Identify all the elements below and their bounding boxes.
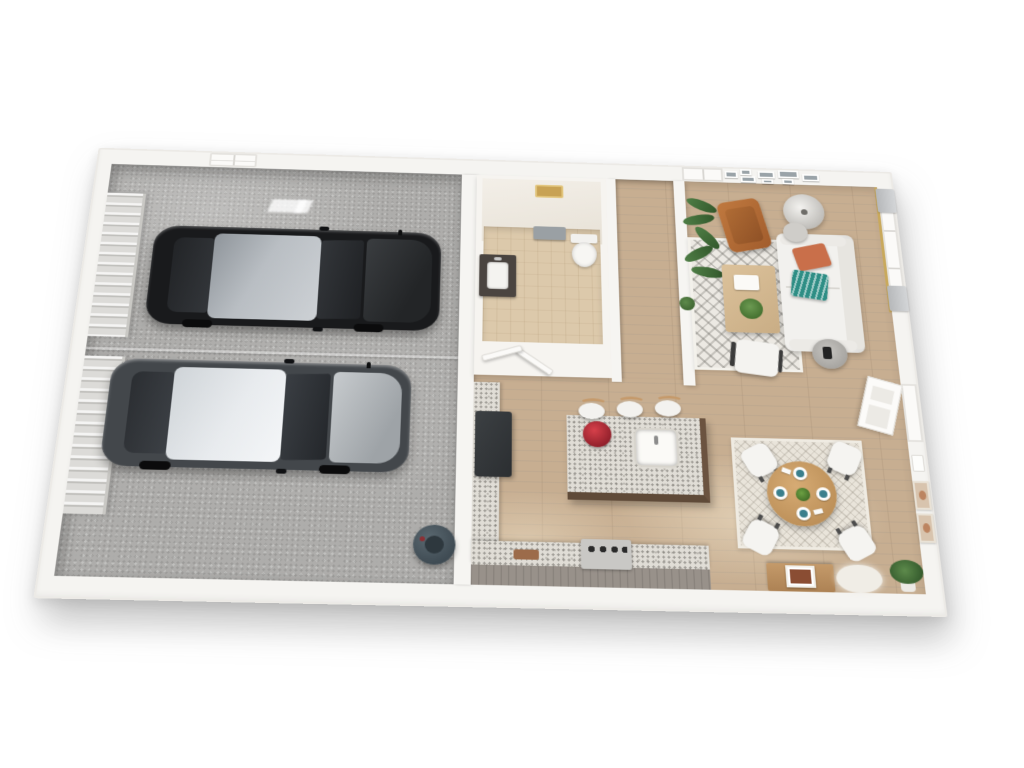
curtain-panel bbox=[875, 189, 896, 213]
refrigerator bbox=[474, 411, 511, 477]
black-sedan bbox=[144, 225, 442, 331]
bar-stool-1 bbox=[578, 402, 605, 419]
gallery-frame bbox=[740, 169, 752, 176]
thermostat-panel bbox=[911, 455, 925, 472]
toilet bbox=[568, 234, 601, 270]
page-background bbox=[0, 0, 1024, 768]
place-setting bbox=[773, 486, 788, 500]
bathroom-block bbox=[474, 175, 612, 378]
gray-sedan bbox=[99, 358, 412, 473]
exterior-walls bbox=[33, 148, 947, 617]
small-potted-plant bbox=[679, 297, 695, 311]
wall-art-2 bbox=[916, 513, 936, 543]
plant-leaves bbox=[889, 560, 925, 585]
car-windshield bbox=[316, 240, 364, 319]
gold-storage-box bbox=[535, 185, 563, 199]
red-fruit-bowl bbox=[583, 421, 612, 448]
bathroom-vanity bbox=[479, 254, 516, 297]
gallery-frame bbox=[762, 179, 774, 184]
stair-treads bbox=[615, 179, 683, 380]
place-setting bbox=[792, 467, 807, 481]
vanity-sink bbox=[487, 262, 509, 289]
white-slipper-chair bbox=[734, 339, 779, 378]
car-mirror bbox=[319, 226, 329, 230]
car-wheel bbox=[354, 324, 384, 333]
bar-stool-2 bbox=[616, 401, 643, 418]
coffee-table bbox=[721, 264, 780, 333]
framed-art-on-console bbox=[785, 565, 816, 588]
place-setting bbox=[796, 507, 812, 521]
car-wheel bbox=[182, 319, 213, 328]
gallery-frame bbox=[724, 171, 737, 178]
gallery-frame bbox=[782, 179, 794, 185]
gallery-frame bbox=[740, 176, 755, 183]
car-windshield bbox=[280, 373, 331, 459]
top-wall-window bbox=[682, 167, 724, 181]
toilet-bowl bbox=[572, 242, 597, 267]
vanity-faucet bbox=[494, 257, 502, 261]
island-sink bbox=[636, 430, 678, 466]
car-roof bbox=[207, 233, 322, 320]
car-antenna-fin bbox=[398, 230, 402, 236]
car-wheel bbox=[319, 465, 351, 474]
gallery-frame bbox=[802, 174, 819, 182]
car-wheel bbox=[139, 461, 171, 470]
gray-towel bbox=[533, 226, 566, 240]
car-mirror bbox=[284, 359, 294, 364]
gallery-frame bbox=[778, 170, 799, 178]
book-stack bbox=[733, 275, 759, 291]
teal-pillow bbox=[791, 269, 829, 301]
gallery-frame bbox=[758, 171, 775, 179]
car-hood bbox=[329, 372, 403, 464]
cutting-board bbox=[514, 549, 539, 560]
car-antenna-fin bbox=[366, 362, 370, 368]
car-mirror bbox=[312, 327, 322, 332]
floor-plan-3d bbox=[72, 118, 922, 618]
wall-art-1 bbox=[912, 481, 932, 510]
car-roof bbox=[165, 367, 286, 462]
bathroom-door-open bbox=[516, 348, 554, 376]
green-bowl-plant bbox=[739, 298, 764, 319]
car-hood bbox=[363, 239, 433, 323]
corner-potted-plant bbox=[889, 560, 926, 595]
skylight-vent bbox=[209, 153, 258, 168]
car-mirror bbox=[275, 469, 286, 474]
green-centerpiece bbox=[795, 488, 810, 502]
curtain-panel bbox=[887, 286, 909, 312]
gas-range bbox=[581, 539, 632, 570]
